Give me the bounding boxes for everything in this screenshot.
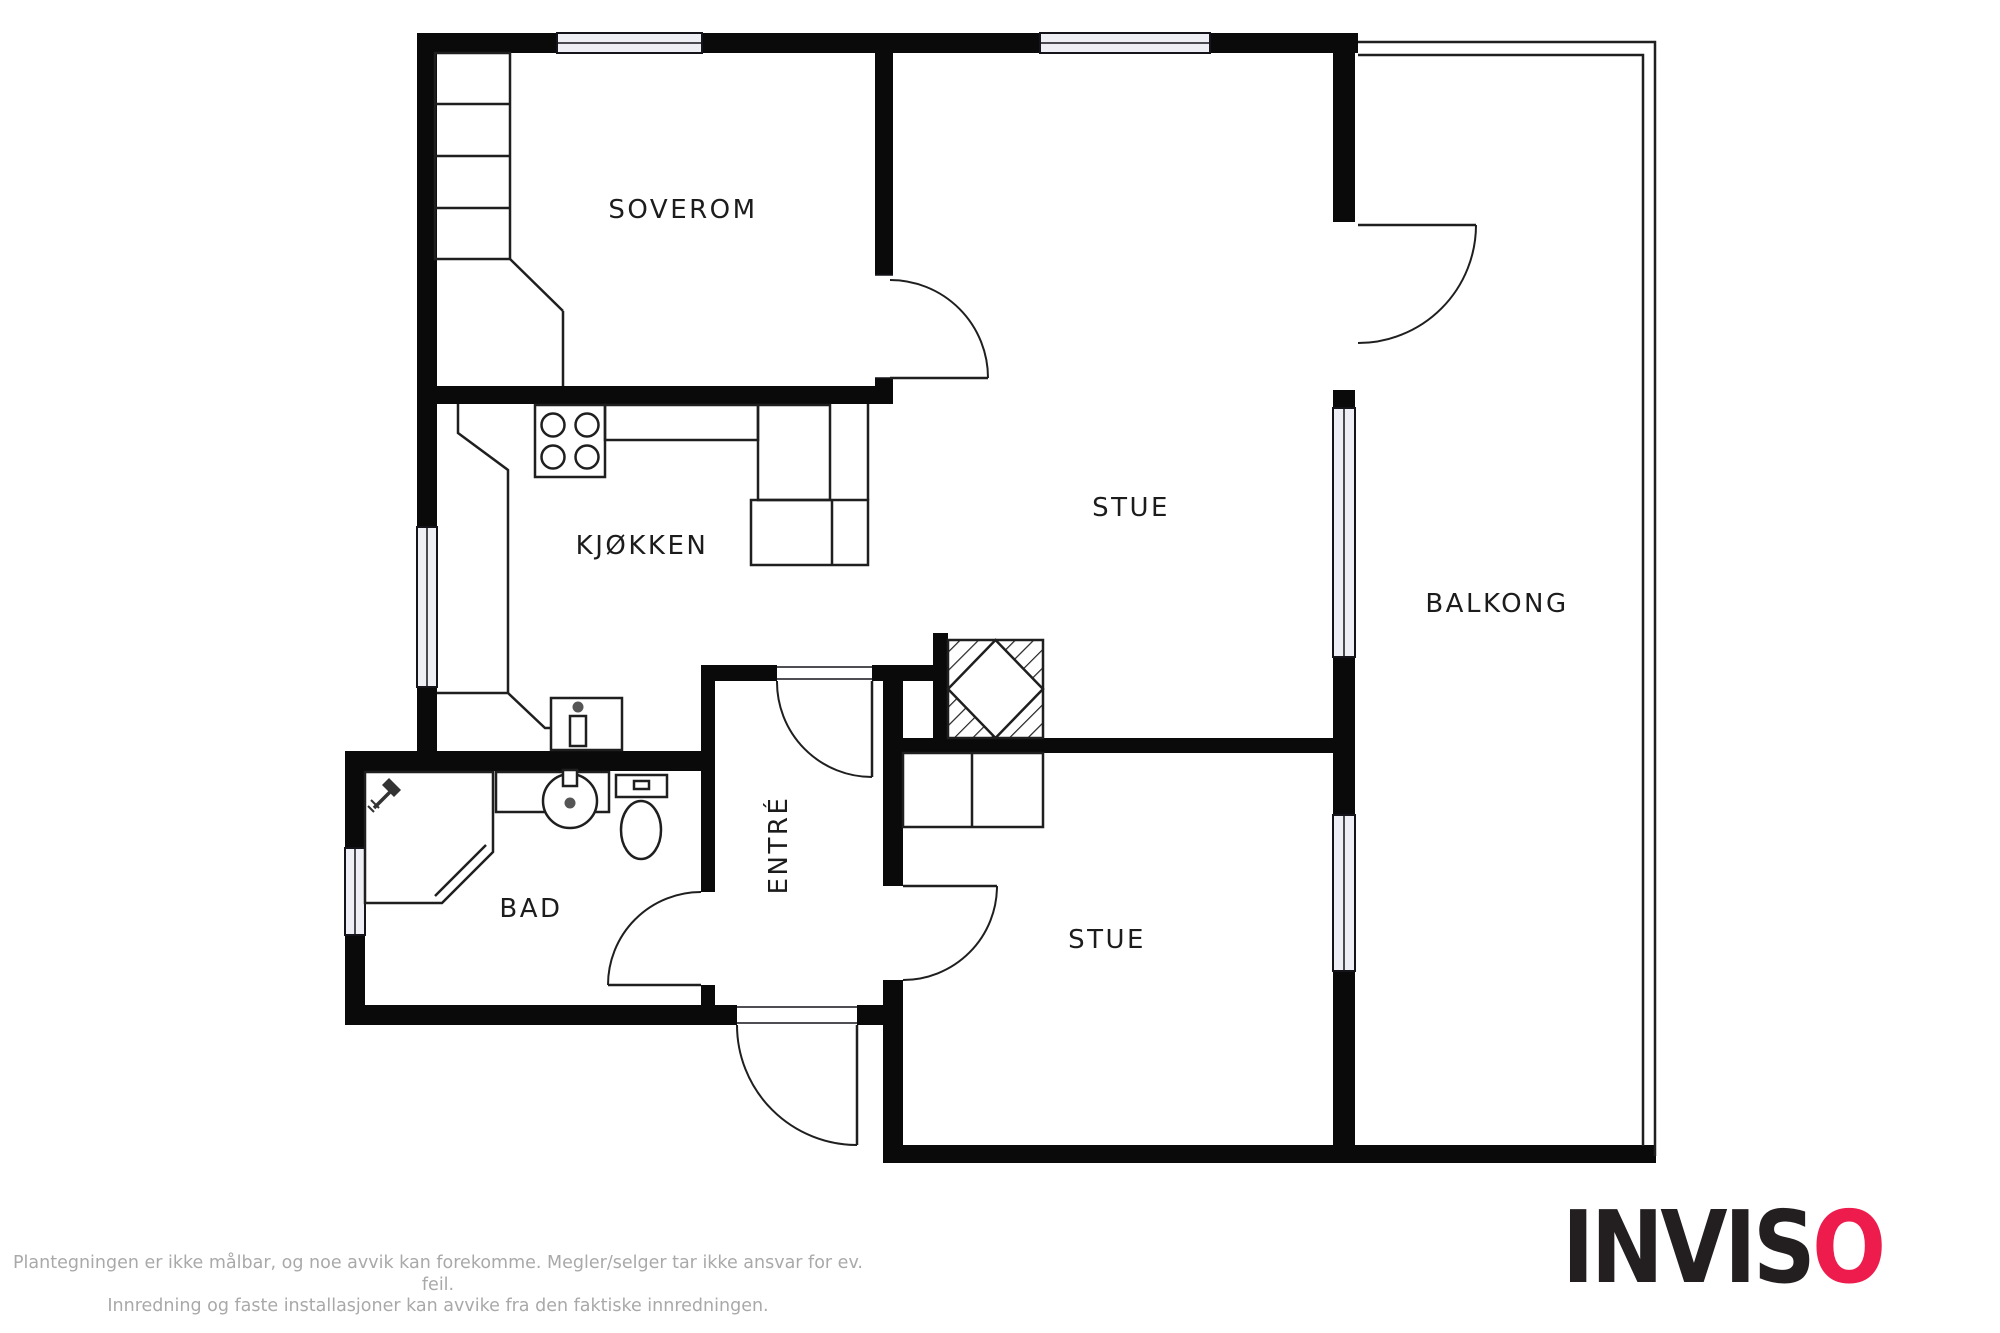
toilet-icon <box>616 775 667 859</box>
label-balkong: BALKONG <box>1425 589 1568 619</box>
inviso-logo: INVISO <box>1562 1198 1883 1298</box>
shower-cabin <box>365 772 493 903</box>
windows <box>345 33 1355 971</box>
door-main-entrance <box>737 1005 857 1145</box>
disclaimer-text: Plantegningen er ikke målbar, og noe avv… <box>0 1253 876 1318</box>
floorplan-svg: SOVEROM STUE BALKONG KJØKKEN BAD ENTRÉ S… <box>0 0 2000 1333</box>
sideboard-cabinet <box>903 753 1043 827</box>
label-stue-top: STUE <box>1092 493 1170 523</box>
window-stue-balcony-lower <box>1333 815 1355 971</box>
disclaimer-line-2: Innredning og faste installasjoner kan a… <box>0 1296 876 1318</box>
window-stue-top <box>1040 33 1210 53</box>
door-entre-stue <box>883 886 997 980</box>
label-kjokken: KJØKKEN <box>576 531 709 561</box>
window-bad-left <box>345 848 365 935</box>
window-soverom <box>557 33 702 53</box>
logo-text-red: O <box>1812 1189 1882 1306</box>
door-soverom-stue <box>875 275 988 378</box>
label-entre: ENTRÉ <box>762 796 794 895</box>
bathroom-fixtures <box>365 770 667 903</box>
kitchen-sink-icon <box>551 698 622 750</box>
stove-icon <box>535 405 605 477</box>
door-entre-bad <box>608 892 715 985</box>
label-stue-bottom: STUE <box>1068 925 1146 955</box>
window-kjokken-left <box>417 527 437 687</box>
door-stue-balkong <box>1358 225 1476 343</box>
door-kjokken-entre <box>777 665 872 777</box>
disclaimer-line-1: Plantegningen er ikke målbar, og noe avv… <box>0 1253 876 1296</box>
chimney-shaft <box>948 640 1043 738</box>
logo-text-black: INVIS <box>1562 1189 1812 1306</box>
label-bad: BAD <box>499 894 562 924</box>
wardrobe <box>435 53 563 386</box>
label-soverom: SOVEROM <box>608 195 757 225</box>
kitchen-fixtures <box>437 404 868 750</box>
window-stue-balcony-upper <box>1333 408 1355 657</box>
washbasin-icon <box>496 770 609 828</box>
